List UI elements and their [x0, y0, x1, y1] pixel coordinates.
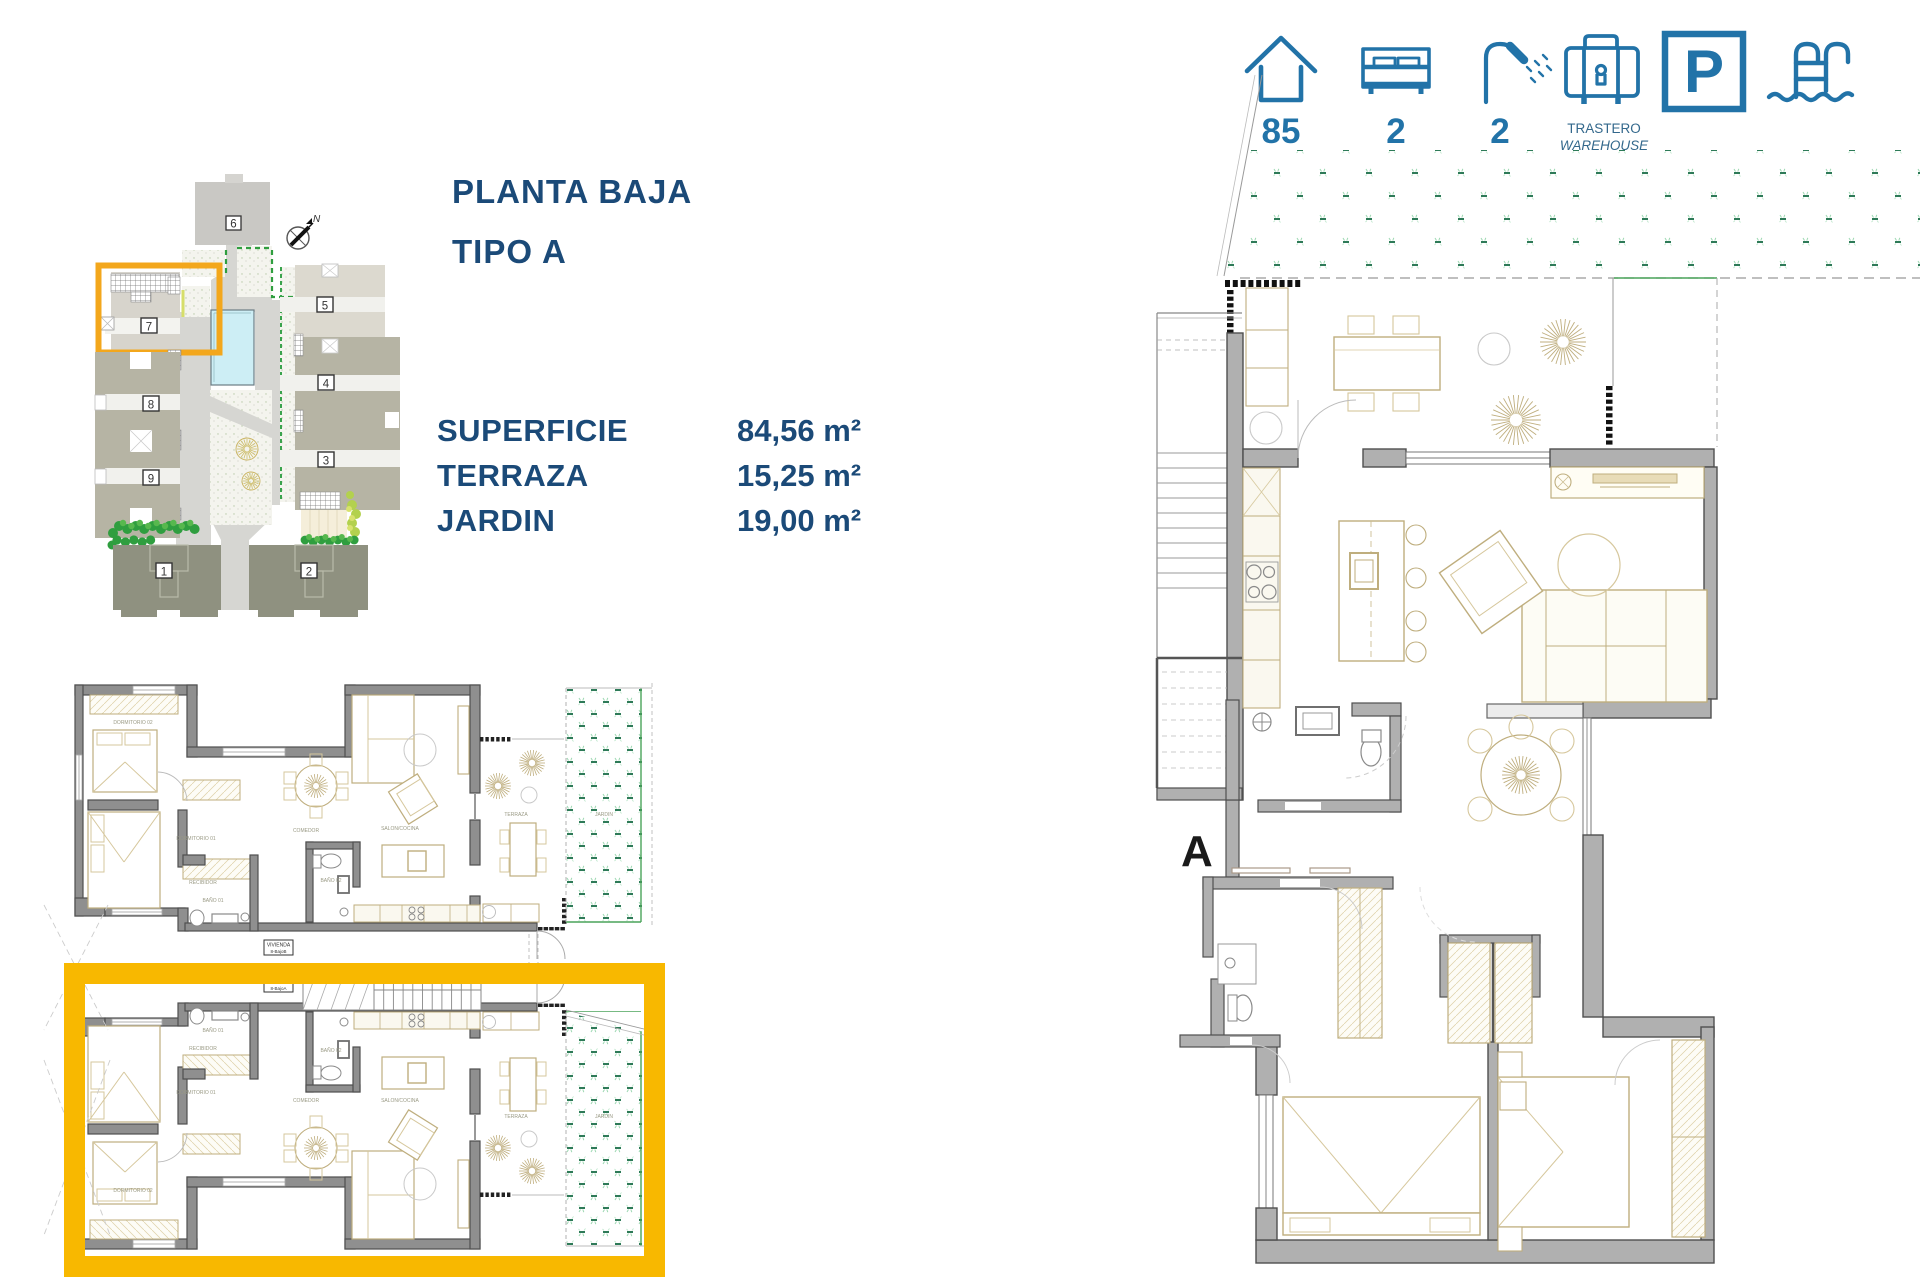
svg-text:N: N: [313, 214, 321, 225]
svg-text:COMEDOR: COMEDOR: [293, 828, 320, 834]
svg-text:TERRAZA: TERRAZA: [437, 458, 589, 493]
svg-text:BAÑO 02: BAÑO 02: [320, 1047, 341, 1054]
svg-text:8: 8: [148, 400, 154, 412]
svg-text:4: 4: [323, 379, 330, 391]
svg-text:2: 2: [1490, 112, 1509, 151]
svg-text:5: 5: [322, 301, 328, 313]
svg-text:2: 2: [1386, 112, 1405, 151]
svg-text:DORMITORIO 01: DORMITORIO 01: [176, 836, 216, 842]
svg-text:RECIBIDOR: RECIBIDOR: [189, 880, 217, 886]
svg-text:TRASTERO: TRASTERO: [1567, 121, 1641, 136]
svg-text:1: 1: [161, 567, 167, 579]
svg-text:6: 6: [230, 219, 236, 231]
svg-text:SUPERFICIE: SUPERFICIE: [437, 413, 628, 448]
svg-text:DORMITORIO 01: DORMITORIO 01: [176, 1090, 216, 1096]
svg-text:JARDIN: JARDIN: [595, 1114, 613, 1120]
svg-text:85: 85: [1262, 112, 1301, 151]
svg-text:JARDIN: JARDIN: [437, 503, 555, 538]
svg-text:7: 7: [146, 322, 152, 334]
svg-text:9: 9: [148, 474, 154, 486]
svg-text:8-BajoA: 8-BajoA: [270, 986, 286, 991]
svg-text:JARDIN: JARDIN: [595, 812, 613, 818]
svg-text:84,56 m²: 84,56 m²: [737, 413, 861, 448]
svg-text:COMEDOR: COMEDOR: [293, 1098, 320, 1104]
svg-text:TIPO A: TIPO A: [452, 233, 567, 270]
svg-text:SALON/COCINA: SALON/COCINA: [381, 1098, 419, 1104]
svg-text:A: A: [1181, 827, 1213, 876]
svg-text:DORMITORIO 02: DORMITORIO 02: [113, 720, 153, 726]
svg-text:PLANTA BAJA: PLANTA BAJA: [452, 173, 692, 210]
svg-text:BAÑO 02: BAÑO 02: [320, 877, 341, 884]
svg-text:BAÑO 01: BAÑO 01: [202, 1027, 223, 1034]
svg-text:8-BajoB: 8-BajoB: [270, 949, 286, 954]
svg-text:15,25 m²: 15,25 m²: [737, 458, 861, 493]
svg-text:TERRAZA: TERRAZA: [504, 812, 528, 818]
svg-text:3: 3: [323, 456, 329, 468]
svg-text:DORMITORIO 02: DORMITORIO 02: [113, 1188, 153, 1194]
svg-text:TERRAZA: TERRAZA: [504, 1114, 528, 1120]
svg-text:SALON/COCINA: SALON/COCINA: [381, 826, 419, 832]
svg-text:VIVIENDA: VIVIENDA: [267, 943, 291, 949]
svg-text:2: 2: [306, 567, 312, 579]
svg-text:P: P: [1684, 38, 1724, 105]
svg-text:19,00 m²: 19,00 m²: [737, 503, 861, 538]
svg-text:BAÑO 01: BAÑO 01: [202, 897, 223, 904]
svg-text:RECIBIDOR: RECIBIDOR: [189, 1046, 217, 1052]
